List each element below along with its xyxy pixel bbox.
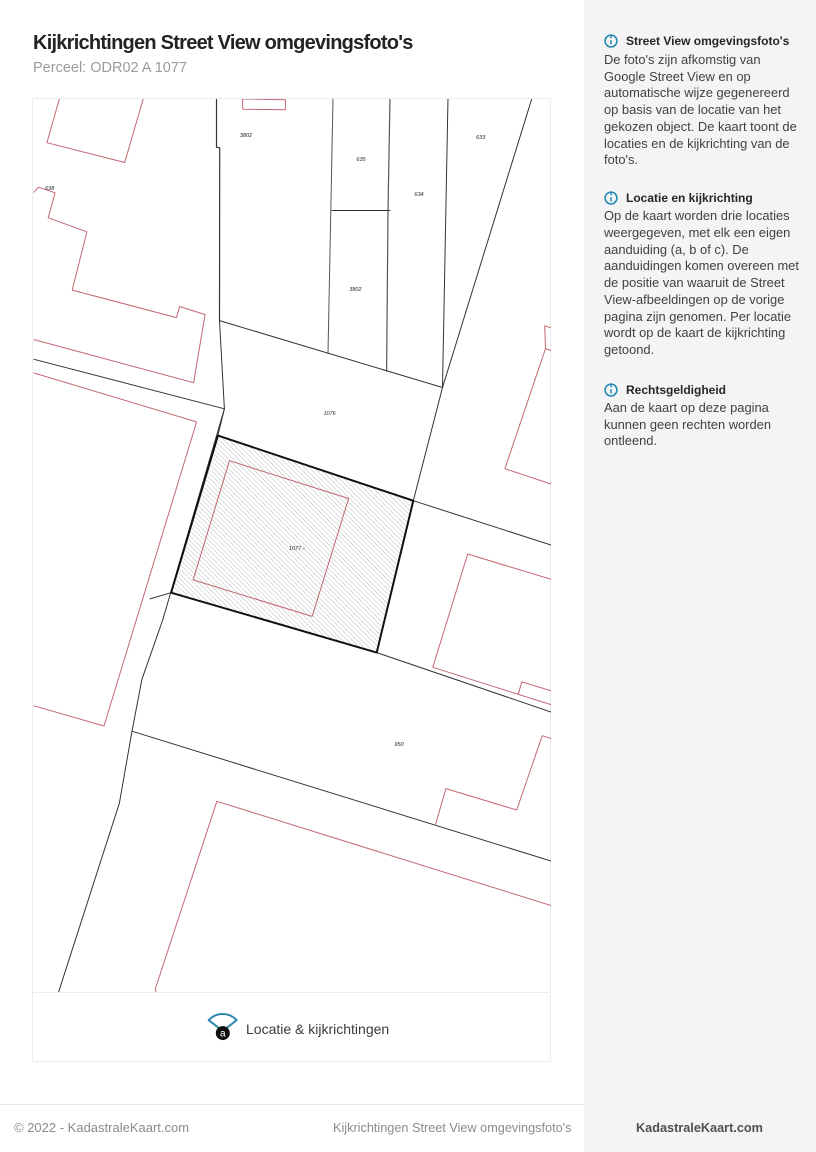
- svg-text:635: 635: [356, 157, 366, 163]
- svg-text:3802: 3802: [349, 287, 361, 293]
- svg-text:950: 950: [394, 742, 404, 748]
- svg-text:1076: 1076: [323, 411, 336, 417]
- svg-text:634: 634: [414, 192, 423, 198]
- svg-text:638: 638: [45, 186, 55, 192]
- svg-text:a: a: [220, 1029, 226, 1040]
- svg-text:633: 633: [476, 135, 486, 141]
- svg-text:3802: 3802: [240, 133, 252, 139]
